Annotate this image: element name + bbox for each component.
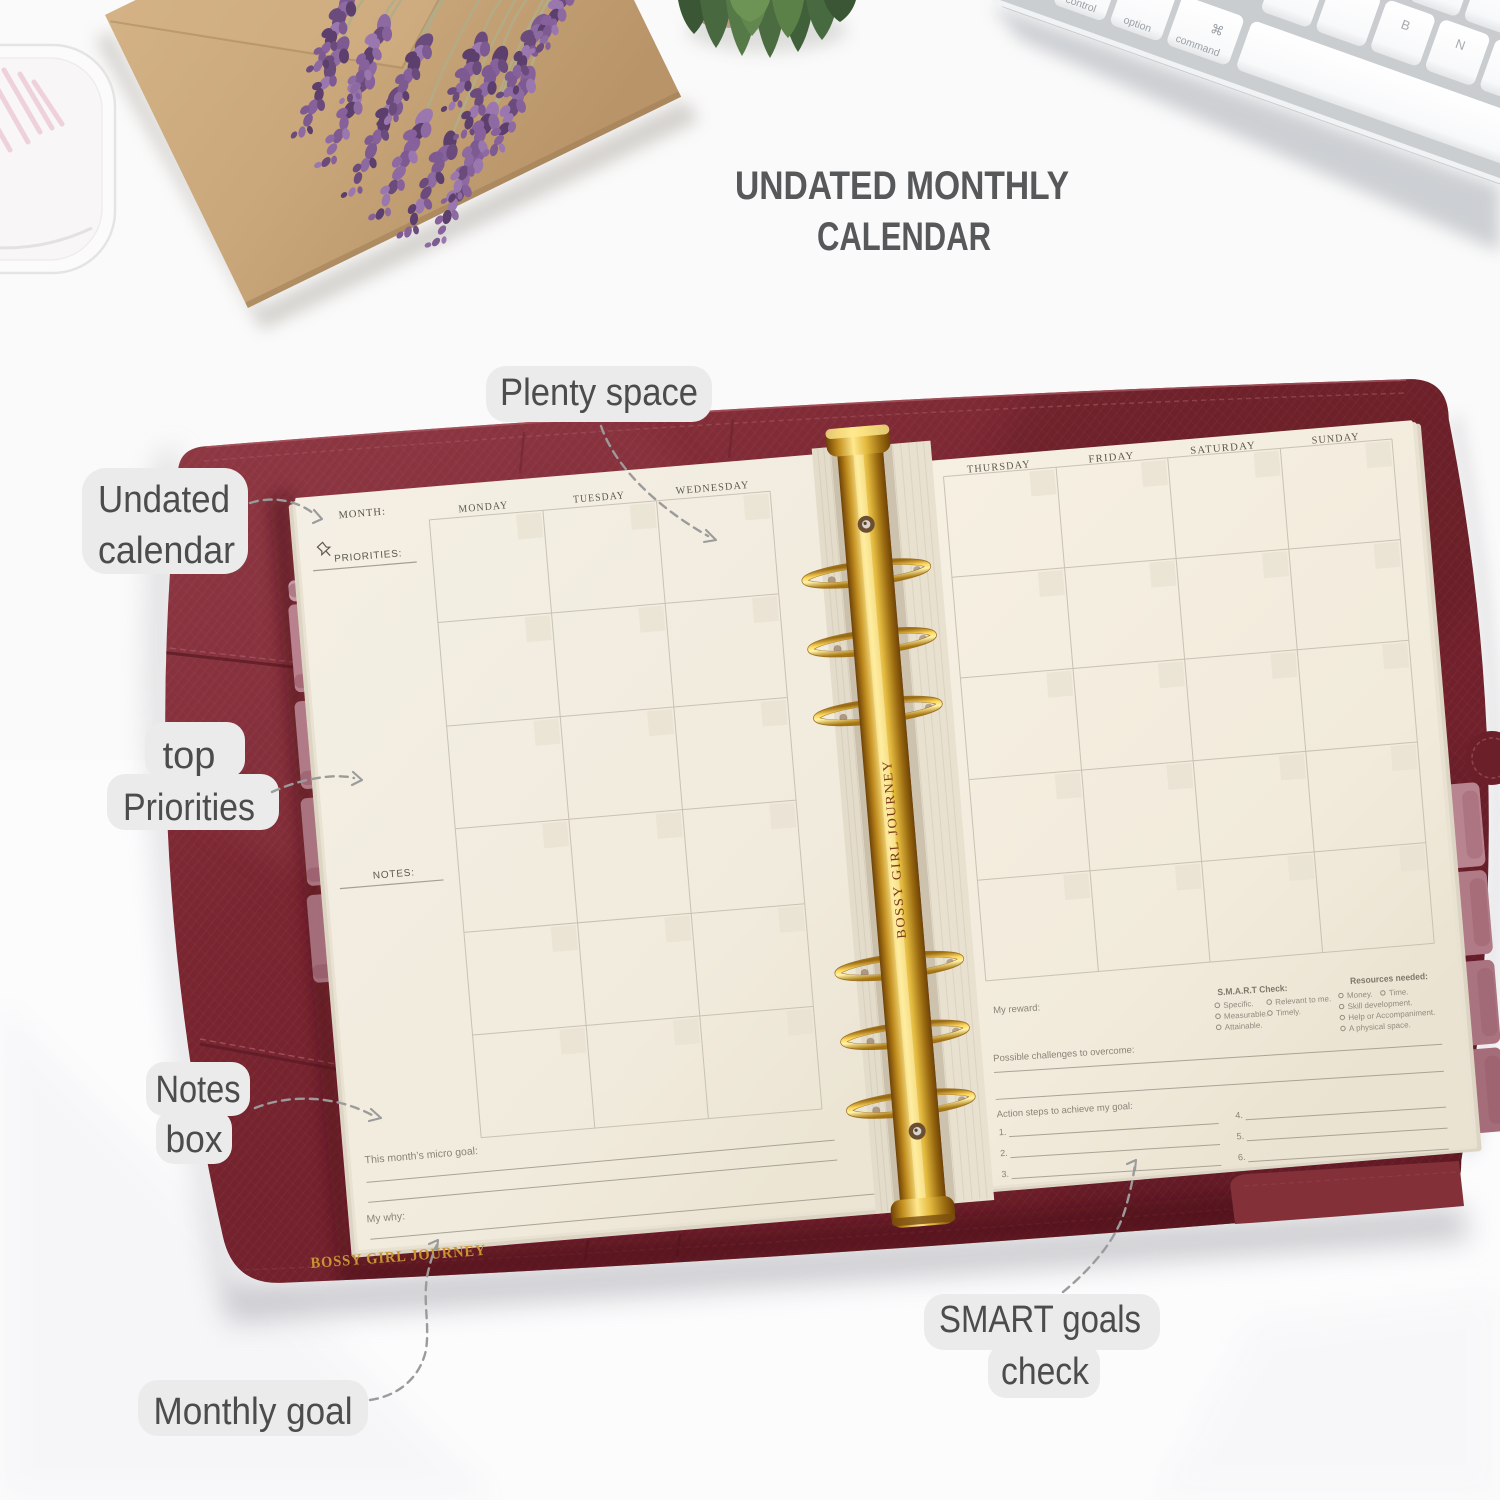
svg-text:Undated: Undated	[98, 479, 230, 521]
svg-text:3.: 3.	[1001, 1169, 1009, 1179]
svg-text:SMART goals: SMART goals	[939, 1299, 1141, 1341]
svg-text:Time.: Time.	[1389, 987, 1409, 997]
svg-text:top: top	[163, 735, 216, 777]
svg-text:Plenty space: Plenty space	[500, 372, 698, 414]
svg-text:Monthly goal: Monthly goal	[154, 1391, 353, 1433]
svg-text:UNDATED MONTHLY: UNDATED MONTHLY	[735, 164, 1069, 208]
svg-text:calendar: calendar	[98, 530, 235, 572]
svg-text:box: box	[166, 1119, 223, 1161]
svg-text:Specific.: Specific.	[1223, 999, 1254, 1010]
svg-text:Money.: Money.	[1347, 990, 1373, 1001]
svg-text:Notes: Notes	[156, 1069, 241, 1111]
svg-text:1.: 1.	[999, 1127, 1007, 1137]
svg-text:check: check	[1001, 1351, 1090, 1393]
svg-text:5.: 5.	[1236, 1131, 1244, 1141]
svg-text:6.: 6.	[1238, 1152, 1246, 1162]
svg-text:Timely.: Timely.	[1276, 1007, 1301, 1018]
svg-text:CALENDAR: CALENDAR	[817, 215, 991, 259]
svg-text:4.: 4.	[1235, 1110, 1243, 1120]
svg-text:2.: 2.	[1000, 1148, 1008, 1158]
svg-text:Priorities: Priorities	[123, 787, 255, 829]
